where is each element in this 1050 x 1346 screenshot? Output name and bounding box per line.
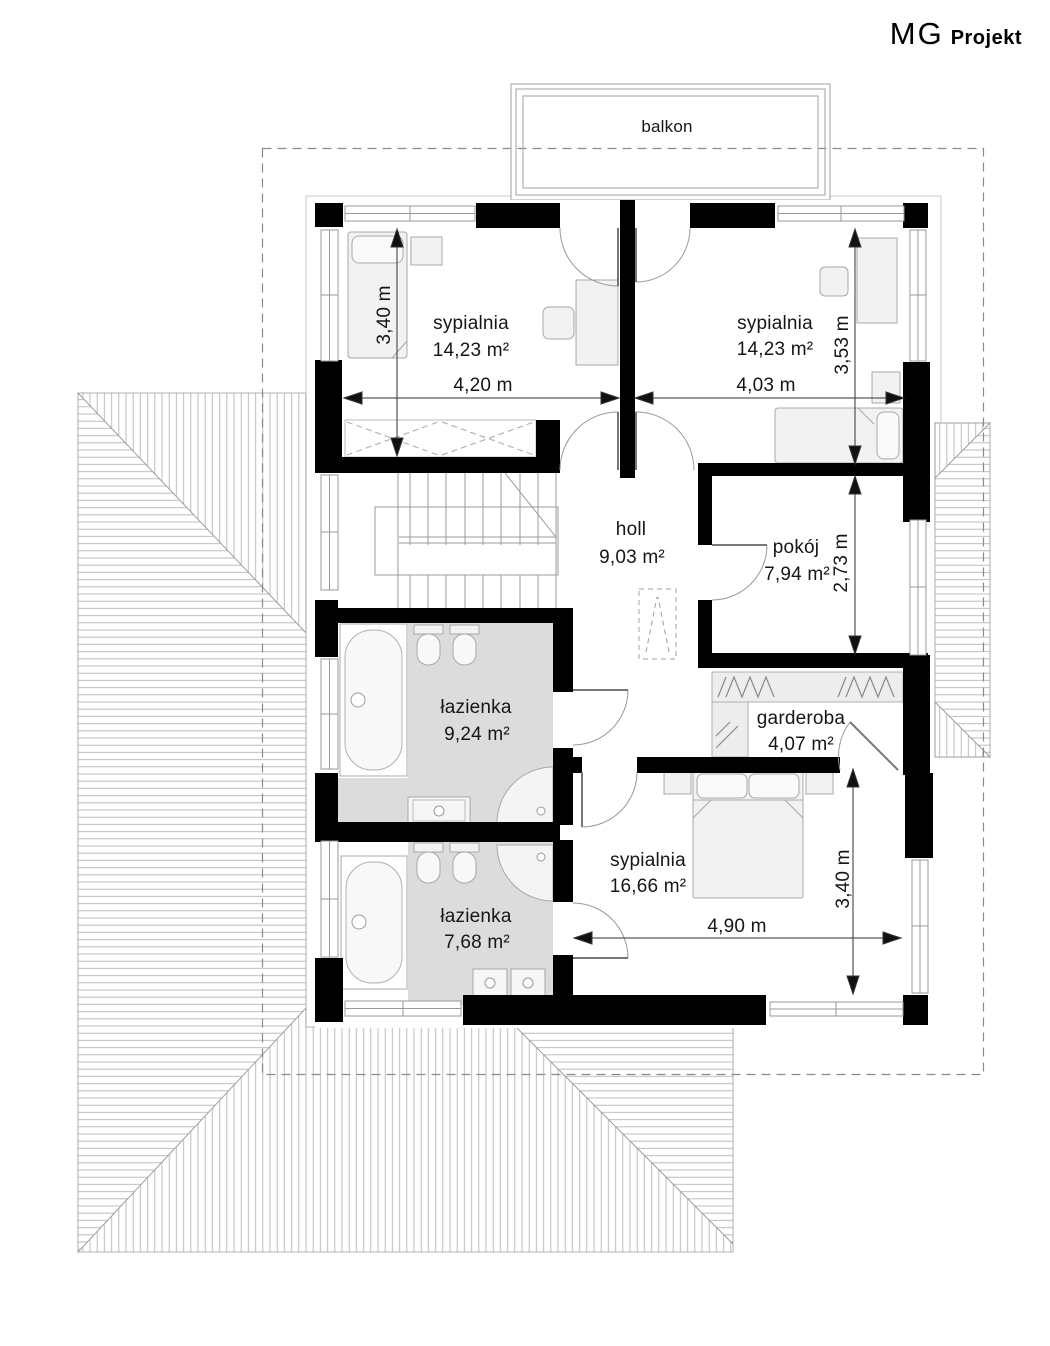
bathtub-icon — [340, 624, 407, 776]
room-name-hall: holl — [616, 519, 646, 541]
room-area-wardrobe: 4,07 m² — [768, 734, 834, 756]
window — [345, 206, 475, 221]
window — [770, 1002, 903, 1016]
window — [321, 475, 338, 590]
room-area-bedroom-top-left: 14,23 m² — [433, 340, 510, 362]
window — [910, 230, 926, 361]
room-name-wardrobe: garderoba — [757, 708, 845, 730]
mg-projekt-logo: MG Projekt — [890, 16, 1022, 52]
bidet-icon — [450, 843, 479, 883]
dim-bedroom-top-right-width: 4,03 m — [736, 375, 795, 397]
room-name-room: pokój — [773, 537, 819, 559]
room-name-bathroom-upper: łazienka — [440, 697, 511, 719]
balcony-label: balkon — [641, 117, 692, 137]
nightstand-icon — [411, 237, 442, 265]
double-bed-icon — [693, 770, 803, 898]
window — [321, 659, 338, 769]
window — [345, 1001, 461, 1016]
bidet-icon — [450, 625, 479, 665]
logo-mg: MG — [890, 16, 944, 52]
window — [778, 206, 904, 221]
desk-icon — [576, 280, 618, 365]
toilet-icon — [414, 625, 443, 665]
dim-bedroom-top-left-width: 4,20 m — [453, 375, 512, 397]
room-area-bedroom-bottom: 16,66 m² — [610, 876, 687, 898]
room-area-bathroom-lower: 7,68 m² — [444, 932, 510, 954]
balcony-railing — [511, 84, 830, 200]
room-area-hall: 9,03 m² — [599, 547, 665, 569]
closet-dashed — [345, 420, 536, 457]
window — [321, 841, 338, 957]
room-name-bathroom-lower: łazienka — [440, 906, 511, 928]
toilet-icon — [414, 843, 443, 883]
window — [910, 520, 926, 655]
logo-projekt: Projekt — [951, 27, 1022, 50]
window — [321, 230, 338, 361]
bed-icon — [775, 408, 903, 463]
floor-plan-drawing — [0, 0, 1050, 1346]
chimney-marker — [639, 589, 676, 659]
dim-bedroom-bottom-height: 3,40 m — [833, 849, 855, 908]
floor-plan-page: MG Projekt balkon sypialnia 14,23 m² syp… — [0, 0, 1050, 1346]
room-area-bathroom-upper: 9,24 m² — [444, 724, 510, 746]
room-area-bedroom-top-right: 14,23 m² — [737, 339, 814, 361]
chair-icon — [820, 267, 848, 296]
window — [912, 860, 928, 993]
washbasin-icon — [473, 969, 507, 996]
dim-bedroom-bottom-width: 4,90 m — [707, 916, 766, 938]
nightstand-icon — [806, 771, 833, 794]
dim-bedroom-top-right-height: 3,53 m — [832, 315, 854, 374]
nightstand-icon — [664, 771, 691, 794]
washbasin-icon — [511, 969, 545, 996]
room-name-bedroom-bottom: sypialnia — [610, 850, 686, 872]
washbasin-icon — [408, 797, 470, 824]
dim-room-height: 2,73 m — [831, 533, 853, 592]
room-name-bedroom-top-left: sypialnia — [433, 313, 509, 335]
room-name-bedroom-top-right: sypialnia — [737, 313, 813, 335]
desk-icon — [857, 238, 897, 323]
chair-icon — [543, 307, 574, 339]
dim-bedroom-top-left-height: 3,40 m — [374, 285, 396, 344]
bathtub-icon — [341, 856, 407, 989]
room-area-room: 7,94 m² — [764, 564, 830, 586]
